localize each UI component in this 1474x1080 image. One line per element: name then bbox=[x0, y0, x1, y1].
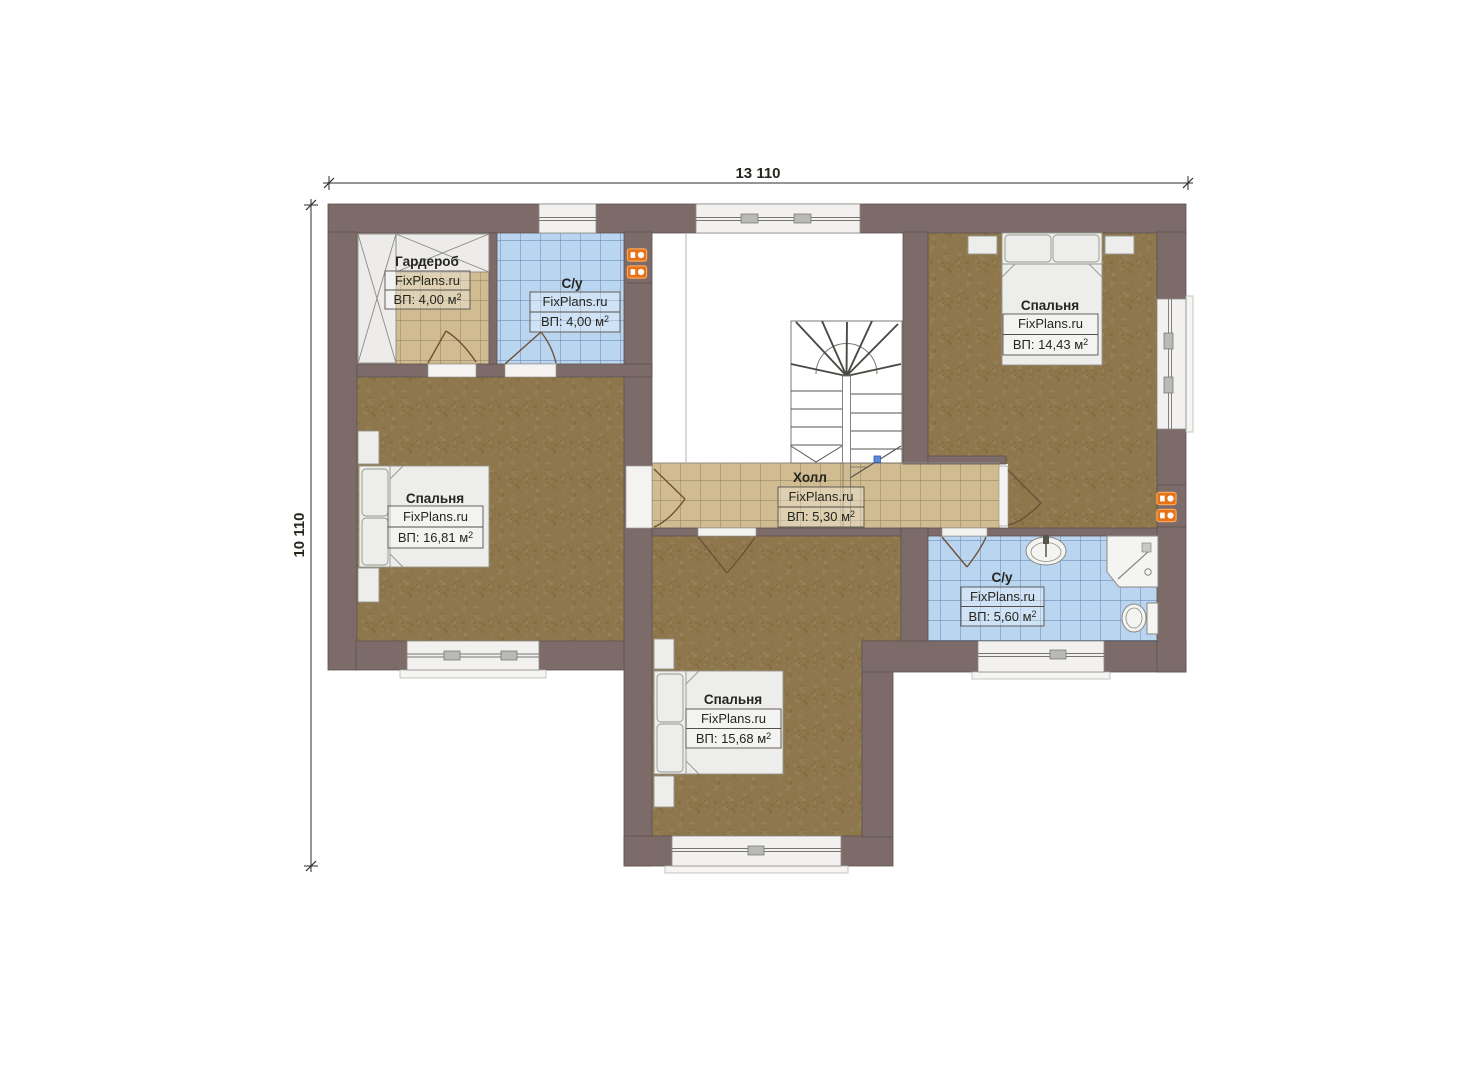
svg-text:ВП: 16,81 м2: ВП: 16,81 м2 bbox=[398, 530, 473, 545]
svg-text:Спальня: Спальня bbox=[406, 491, 464, 506]
svg-text:FixPlans.ru: FixPlans.ru bbox=[701, 711, 766, 726]
svg-text:FixPlans.ru: FixPlans.ru bbox=[542, 294, 607, 309]
svg-text:ВП: 4,00 м2: ВП: 4,00 м2 bbox=[393, 292, 461, 307]
svg-text:Гардероб: Гардероб bbox=[395, 254, 459, 269]
svg-text:С/у: С/у bbox=[561, 276, 583, 291]
svg-text:13 110: 13 110 bbox=[735, 165, 780, 182]
svg-text:FixPlans.ru: FixPlans.ru bbox=[970, 589, 1035, 604]
svg-text:FixPlans.ru: FixPlans.ru bbox=[403, 509, 468, 524]
svg-text:ВП: 5,30 м2: ВП: 5,30 м2 bbox=[787, 509, 855, 524]
svg-text:ВП: 5,60 м2: ВП: 5,60 м2 bbox=[968, 609, 1036, 624]
svg-text:С/у: С/у bbox=[991, 570, 1013, 585]
svg-text:Спальня: Спальня bbox=[704, 692, 762, 707]
svg-text:FixPlans.ru: FixPlans.ru bbox=[1018, 316, 1083, 331]
svg-text:FixPlans.ru: FixPlans.ru bbox=[395, 273, 460, 288]
svg-text:ВП: 4,00 м2: ВП: 4,00 м2 bbox=[541, 314, 609, 329]
svg-text:FixPlans.ru: FixPlans.ru bbox=[788, 489, 853, 504]
svg-text:Холл: Холл bbox=[793, 470, 827, 485]
svg-text:ВП: 14,43 м2: ВП: 14,43 м2 bbox=[1013, 337, 1088, 352]
svg-text:10 110: 10 110 bbox=[291, 512, 308, 557]
svg-text:Спальня: Спальня bbox=[1021, 298, 1079, 313]
svg-text:ВП: 15,68 м2: ВП: 15,68 м2 bbox=[696, 731, 771, 746]
